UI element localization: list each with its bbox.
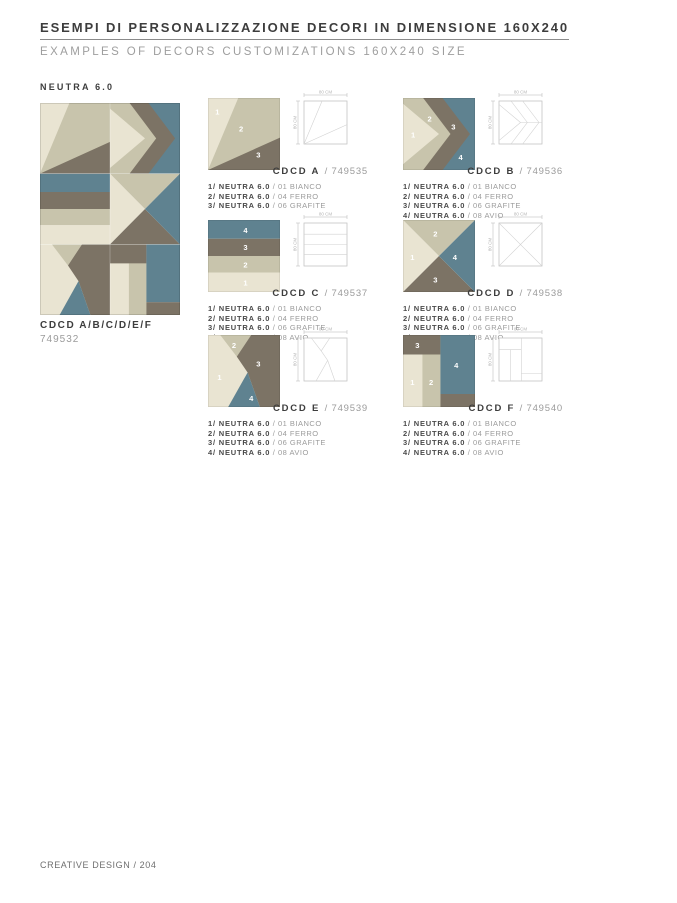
- material-color: / 01 BIANCO: [465, 182, 516, 191]
- material-row: 4/ NEUTRA 6.0 / 08 AVIO: [208, 448, 326, 458]
- material-row: 3/ NEUTRA 6.0 / 06 GRAFITE: [208, 201, 326, 211]
- tile-number: 2: [428, 115, 432, 124]
- material-color: / 01 BIANCO: [465, 419, 516, 428]
- material-product: 1/ NEUTRA 6.0: [403, 304, 465, 313]
- decor-label: CDCD C / 749537: [263, 283, 368, 301]
- decor-dimension-diagram: 80 CM80 CM: [485, 89, 547, 147]
- decor-code: / 749535: [325, 166, 368, 177]
- material-row: 2/ NEUTRA 6.0 / 04 FERRO: [208, 192, 326, 202]
- material-product: 2/ NEUTRA 6.0: [208, 314, 270, 323]
- tile-number: 1: [411, 130, 415, 139]
- material-color: / 04 FERRO: [465, 314, 513, 323]
- decor-name: CDCD D: [467, 288, 515, 299]
- material-row: 1/ NEUTRA 6.0 / 01 BIANCO: [208, 182, 326, 192]
- decor-code: / 749537: [325, 288, 368, 299]
- decor-label: CDCD E / 749539: [263, 398, 368, 416]
- dimension-height-label: 80 CM: [488, 238, 493, 252]
- tile-number: 1: [243, 278, 247, 287]
- material-color: / 04 FERRO: [270, 429, 318, 438]
- page-footer: CREATIVE DESIGN / 204: [40, 860, 156, 870]
- dimension-width-label: 80 CM: [514, 327, 528, 332]
- material-product: 1/ NEUTRA 6.0: [403, 182, 465, 191]
- material-product: 1/ NEUTRA 6.0: [208, 182, 270, 191]
- decor-name: CDCD E: [273, 403, 320, 414]
- tile-number: 2: [232, 341, 236, 350]
- material-color: / 04 FERRO: [465, 429, 513, 438]
- tile-number: 2: [433, 229, 437, 238]
- material-color: / 06 GRAFITE: [465, 201, 521, 210]
- material-product: 3/ NEUTRA 6.0: [208, 438, 270, 447]
- decor-tile-image: 1234: [403, 98, 475, 170]
- tile-number: 1: [410, 378, 414, 387]
- material-product: 3/ NEUTRA 6.0: [403, 438, 465, 447]
- tile-number: 1: [217, 373, 221, 382]
- material-product: 4/ NEUTRA 6.0: [403, 448, 465, 457]
- dimension-height-label: 80 CM: [488, 353, 493, 367]
- material-color: / 01 BIANCO: [270, 182, 321, 191]
- decor-label: CDCD A / 749535: [263, 161, 368, 179]
- decor-dimension-diagram: 80 CM80 CM: [290, 326, 352, 384]
- material-product: 1/ NEUTRA 6.0: [208, 304, 270, 313]
- tile-number: 3: [243, 243, 247, 252]
- material-color: / 06 GRAFITE: [270, 201, 326, 210]
- decor-dimension-diagram: 80 CM80 CM: [290, 211, 352, 269]
- decor-code: / 749538: [520, 288, 563, 299]
- dimension-height-label: 80 CM: [293, 238, 298, 252]
- collection-label: NEUTRA 6.0: [40, 82, 114, 92]
- material-color: / 01 BIANCO: [270, 419, 321, 428]
- decor-tile-image: 123: [208, 98, 280, 170]
- composite-code: 749532: [40, 334, 79, 345]
- material-color: / 04 FERRO: [270, 314, 318, 323]
- decor-name: CDCD B: [467, 166, 515, 177]
- material-row: 3/ NEUTRA 6.0 / 06 GRAFITE: [403, 201, 521, 211]
- material-row: 3/ NEUTRA 6.0 / 06 GRAFITE: [208, 438, 326, 448]
- material-product: 2/ NEUTRA 6.0: [208, 429, 270, 438]
- decor-code: / 749536: [520, 166, 563, 177]
- tile-number: 3: [256, 151, 260, 160]
- decor-tile-image: 1234: [208, 220, 280, 292]
- decor-code: / 749540: [520, 403, 563, 414]
- tile-number: 3: [415, 341, 419, 350]
- tile-number: 3: [451, 123, 455, 132]
- decor-name: CDCD C: [272, 288, 320, 299]
- dimension-width-label: 80 CM: [514, 212, 528, 217]
- dimension-height-label: 80 CM: [488, 116, 493, 130]
- catalog-page: ESEMPI DI PERSONALIZZAZIONE DECORI IN DI…: [0, 0, 677, 903]
- decor-label: CDCD B / 749536: [458, 161, 563, 179]
- material-row: 2/ NEUTRA 6.0 / 04 FERRO: [208, 314, 326, 324]
- material-color: / 06 GRAFITE: [465, 438, 521, 447]
- material-row: 4/ NEUTRA 6.0 / 08 AVIO: [403, 448, 521, 458]
- dimension-width-label: 80 CM: [319, 212, 333, 217]
- tile-number: 2: [243, 260, 247, 269]
- material-product: 3/ NEUTRA 6.0: [208, 201, 270, 210]
- material-product: 3/ NEUTRA 6.0: [403, 323, 465, 332]
- material-row: 2/ NEUTRA 6.0 / 04 FERRO: [208, 429, 326, 439]
- material-color: / 08 AVIO: [270, 448, 309, 457]
- tile-number: 2: [239, 125, 243, 134]
- composite-decor-image: [40, 103, 180, 315]
- decor-tile-image: 1234: [208, 335, 280, 407]
- tile-number: 3: [256, 360, 260, 369]
- composite-name: CDCD A/B/C/D/E/F: [40, 320, 152, 331]
- material-row: 2/ NEUTRA 6.0 / 04 FERRO: [403, 314, 521, 324]
- material-color: / 08 AVIO: [465, 448, 504, 457]
- decor-name: CDCD F: [468, 403, 515, 414]
- decor-label: CDCD F / 749540: [458, 398, 563, 416]
- material-row: 1/ NEUTRA 6.0 / 01 BIANCO: [403, 182, 521, 192]
- decor-code: / 749539: [325, 403, 368, 414]
- tile-number: 2: [429, 378, 433, 387]
- material-row: 2/ NEUTRA 6.0 / 04 FERRO: [403, 429, 521, 439]
- material-product: 4/ NEUTRA 6.0: [403, 211, 465, 220]
- decor-dimension-diagram: 80 CM80 CM: [485, 211, 547, 269]
- dimension-height-label: 80 CM: [293, 353, 298, 367]
- material-product: 2/ NEUTRA 6.0: [403, 429, 465, 438]
- material-product: 3/ NEUTRA 6.0: [208, 323, 270, 332]
- decor-materials-list: 1/ NEUTRA 6.0 / 01 BIANCO2/ NEUTRA 6.0 /…: [403, 419, 521, 457]
- material-product: 1/ NEUTRA 6.0: [403, 419, 465, 428]
- material-row: 1/ NEUTRA 6.0 / 01 BIANCO: [403, 419, 521, 429]
- material-color: / 04 FERRO: [465, 192, 513, 201]
- tile-number: 3: [433, 275, 437, 284]
- dimension-width-label: 80 CM: [514, 90, 528, 95]
- material-product: 4/ NEUTRA 6.0: [208, 448, 270, 457]
- tile-number: 1: [215, 107, 219, 116]
- material-color: / 06 GRAFITE: [270, 438, 326, 447]
- material-product: 1/ NEUTRA 6.0: [208, 419, 270, 428]
- decor-dimension-diagram: 80 CM80 CM: [485, 326, 547, 384]
- material-product: 2/ NEUTRA 6.0: [403, 192, 465, 201]
- material-row: 2/ NEUTRA 6.0 / 04 FERRO: [403, 192, 521, 202]
- decor-materials-list: 1/ NEUTRA 6.0 / 01 BIANCO2/ NEUTRA 6.0 /…: [208, 419, 326, 457]
- decor-dimension-diagram: 80 CM80 CM: [290, 89, 352, 147]
- tile-number: 1: [410, 253, 414, 262]
- material-row: 3/ NEUTRA 6.0 / 06 GRAFITE: [403, 438, 521, 448]
- material-color: / 01 BIANCO: [270, 304, 321, 313]
- material-row: 1/ NEUTRA 6.0 / 01 BIANCO: [403, 304, 521, 314]
- material-color: / 01 BIANCO: [465, 304, 516, 313]
- material-row: 1/ NEUTRA 6.0 / 01 BIANCO: [208, 419, 326, 429]
- material-product: 2/ NEUTRA 6.0: [403, 314, 465, 323]
- dimension-height-label: 80 CM: [293, 116, 298, 130]
- material-product: 3/ NEUTRA 6.0: [403, 201, 465, 210]
- material-color: / 04 FERRO: [270, 192, 318, 201]
- decor-tile-image: 1234: [403, 220, 475, 292]
- material-product: 2/ NEUTRA 6.0: [208, 192, 270, 201]
- dimension-width-label: 80 CM: [319, 90, 333, 95]
- decor-label: CDCD D / 749538: [458, 283, 563, 301]
- page-title: ESEMPI DI PERSONALIZZAZIONE DECORI IN DI…: [40, 20, 569, 40]
- material-row: 1/ NEUTRA 6.0 / 01 BIANCO: [208, 304, 326, 314]
- decor-materials-list: 1/ NEUTRA 6.0 / 01 BIANCO2/ NEUTRA 6.0 /…: [208, 182, 326, 211]
- page-subtitle: EXAMPLES OF DECORS CUSTOMIZATIONS 160X24…: [40, 46, 467, 58]
- dimension-width-label: 80 CM: [319, 327, 333, 332]
- decor-tile-image: 1234: [403, 335, 475, 407]
- decor-name: CDCD A: [273, 166, 320, 177]
